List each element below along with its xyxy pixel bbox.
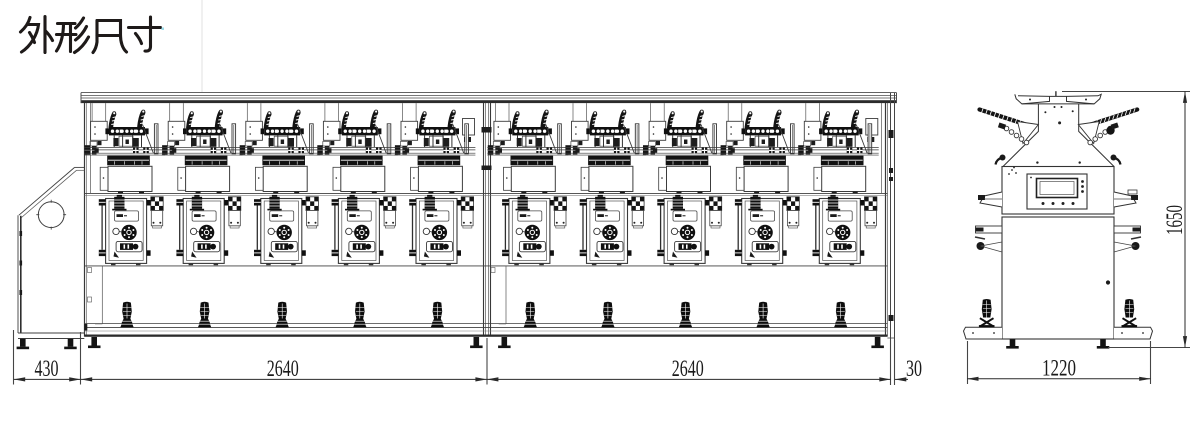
svg-text:1220: 1220	[1042, 355, 1076, 380]
svg-text:2640: 2640	[672, 356, 704, 381]
svg-text:2640: 2640	[267, 356, 299, 381]
svg-text:430: 430	[35, 356, 59, 381]
svg-text:30: 30	[906, 356, 922, 381]
svg-text:1650: 1650	[1162, 205, 1187, 235]
